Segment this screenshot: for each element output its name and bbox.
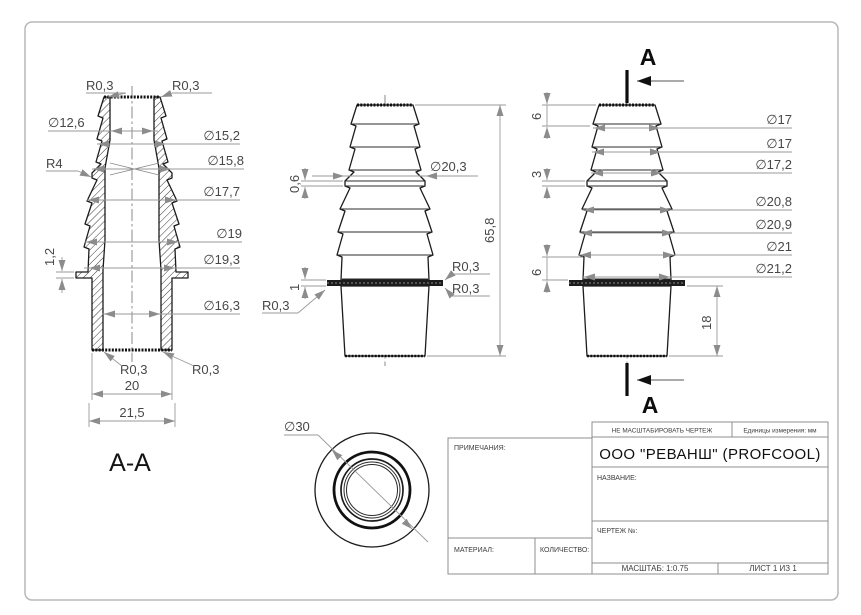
dim-bore-top: ∅12,6 xyxy=(48,115,85,130)
dim-lip: ∅15,8 xyxy=(207,153,244,168)
dim-d4: ∅20,8 xyxy=(755,194,792,209)
dim-lip-step: 0,6 xyxy=(287,175,302,193)
bottom-view: ∅30 xyxy=(284,419,429,547)
cut-label-bottom: A xyxy=(642,392,659,418)
bore-circle xyxy=(344,462,400,518)
cut-label-top: A xyxy=(640,44,657,70)
units-note: Единицы измерения: мм xyxy=(743,428,816,435)
scale-value: МАСШТАБ: 1:0.75 xyxy=(622,564,689,573)
dim-barb-large-1: ∅17,7 xyxy=(203,184,240,199)
dim-lip-diameter: ∅20,3 xyxy=(430,159,467,174)
front-outlet xyxy=(341,286,429,356)
company-name: ООО "РЕВАНШ" (PROFCOOL) xyxy=(599,446,820,463)
dim-seg-lower: 6 xyxy=(529,269,544,276)
side-body xyxy=(579,105,675,280)
drawing-canvas: R0,3 R0,3 ∅12,6 ∅15,2 R4 ∅15,8 xyxy=(0,0,861,615)
dim-fillet-bottom-right: R0,3 xyxy=(192,362,219,377)
dim-fillet-flange-left: R0,3 xyxy=(262,298,289,313)
dim-barb-large-2: ∅19 xyxy=(216,226,242,241)
dim-seg-lip: 3 xyxy=(529,171,544,178)
dim-d7: ∅21,2 xyxy=(755,261,792,276)
side-view: A A 6 3 6 18 xyxy=(529,44,792,418)
dim-outlet-width: 20 xyxy=(125,378,139,393)
page-border xyxy=(25,22,838,600)
front-view: 0,6 ∅20,3 65,8 1 R0,3 R0,3 R0,3 xyxy=(262,95,506,366)
outlet-outer-circle xyxy=(334,452,410,528)
section-view-title: A-A xyxy=(109,449,151,477)
outlet-inner-circle xyxy=(341,459,403,521)
section-dimensions: R0,3 R0,3 ∅12,6 ∅15,2 R4 ∅15,8 xyxy=(42,78,244,427)
dim-d2: ∅17 xyxy=(766,136,792,151)
dim-d5: ∅20,9 xyxy=(755,217,792,232)
dim-fillet-flange-right-2: R0,3 xyxy=(452,281,479,296)
dim-d3: ∅17,2 xyxy=(755,157,792,172)
drawing-sheet: R0,3 R0,3 ∅12,6 ∅15,2 R4 ∅15,8 xyxy=(0,0,861,615)
dim-outlet-height: 18 xyxy=(699,316,714,330)
dim-fillet-top-left: R0,3 xyxy=(86,78,113,93)
dim-flange-thickness-front: 1 xyxy=(287,284,302,291)
side-outlet xyxy=(583,286,671,356)
dim-fillet-flange-right-1: R0,3 xyxy=(452,259,479,274)
quantity-label: КОЛИЧЕСТВО: xyxy=(540,547,589,554)
dim-flare-radius: R4 xyxy=(46,156,63,171)
dim-d1: ∅17 xyxy=(766,112,792,127)
dim-flange-diameter: ∅30 xyxy=(284,419,310,434)
bore-inner-circle xyxy=(347,465,398,516)
material-label: МАТЕРИАЛ: xyxy=(454,547,494,554)
dim-fillet-top-right: R0,3 xyxy=(172,78,199,93)
drawing-no-label: ЧЕРТЕЖ №: xyxy=(597,528,638,535)
section-view: R0,3 R0,3 ∅12,6 ∅15,2 R4 ∅15,8 xyxy=(42,78,244,477)
dim-bore-bottom: ∅16,3 xyxy=(203,298,240,313)
no-scale-note: НЕ МАСШТАБИРОВАТЬ ЧЕРТЕЖ xyxy=(612,428,713,435)
name-label: НАЗВАНИЕ: xyxy=(597,475,637,482)
front-body xyxy=(337,105,433,280)
dim-neck: ∅19,3 xyxy=(203,252,240,267)
sheet-number: ЛИСТ 1 ИЗ 1 xyxy=(749,564,797,573)
dim-d6: ∅21 xyxy=(766,239,792,254)
dim-barb-small: ∅15,2 xyxy=(203,128,240,143)
notes-label: ПРИМЕЧАНИЯ: xyxy=(454,445,506,452)
dim-seg-top: 6 xyxy=(529,113,544,120)
section-wall-left xyxy=(76,97,110,350)
dim-fillet-bottom-left: R0,3 xyxy=(120,362,147,377)
dim-flange-thickness: 1,2 xyxy=(42,248,57,266)
title-block: НЕ МАСШТАБИРОВАТЬ ЧЕРТЕЖ Единицы измерен… xyxy=(448,422,828,574)
section-wall-right xyxy=(154,97,188,350)
dim-outlet-width-outer: 21,5 xyxy=(119,405,144,420)
dim-overall-height: 65,8 xyxy=(482,218,497,243)
